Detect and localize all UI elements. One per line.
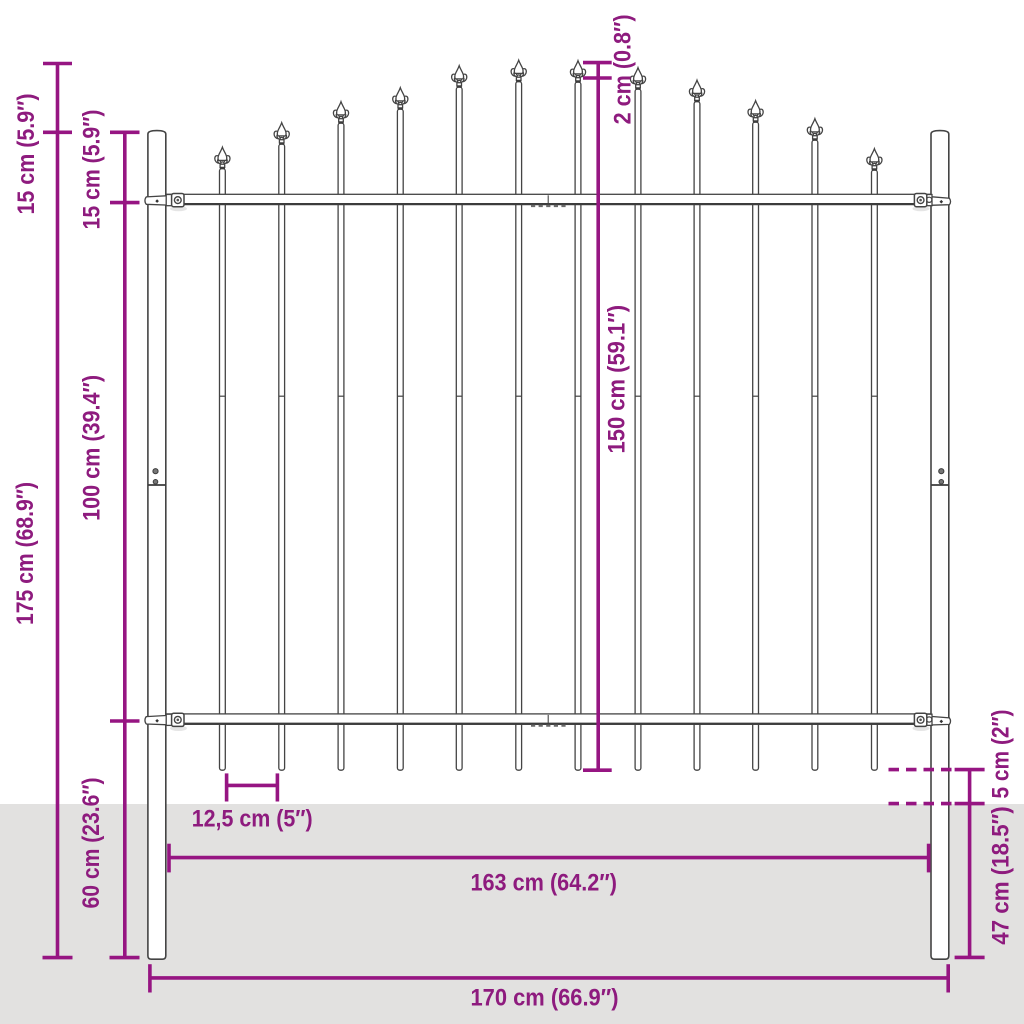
- svg-text:15 cm (5.9″): 15 cm (5.9″): [13, 94, 40, 215]
- svg-text:47 cm (18.5″): 47 cm (18.5″): [987, 806, 1014, 945]
- svg-text:150 cm (59.1″): 150 cm (59.1″): [604, 305, 631, 454]
- svg-text:60 cm (23.6″): 60 cm (23.6″): [78, 778, 105, 909]
- svg-text:170 cm (66.9″): 170 cm (66.9″): [471, 984, 619, 1011]
- svg-text:163 cm (64.2″): 163 cm (64.2″): [470, 869, 617, 896]
- svg-text:5 cm (2″): 5 cm (2″): [987, 710, 1014, 799]
- svg-text:12,5 cm (5″): 12,5 cm (5″): [192, 805, 313, 832]
- svg-text:175 cm (68.9″): 175 cm (68.9″): [12, 482, 39, 625]
- svg-text:2 cm (0.8″): 2 cm (0.8″): [610, 14, 637, 124]
- svg-text:15 cm (5.9″): 15 cm (5.9″): [78, 110, 105, 230]
- svg-text:100 cm (39.4″): 100 cm (39.4″): [78, 375, 105, 521]
